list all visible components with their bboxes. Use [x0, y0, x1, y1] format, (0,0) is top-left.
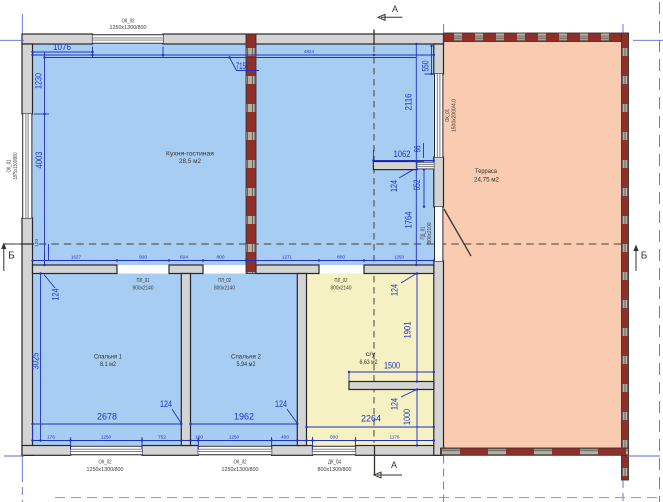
svg-text:1076: 1076 — [53, 42, 71, 52]
svg-text:1962: 1962 — [234, 412, 254, 422]
svg-text:652: 652 — [412, 180, 422, 191]
svg-text:1875х1300/800: 1875х1300/800 — [13, 153, 19, 180]
svg-text:ПЛ_02: ПЛ_02 — [335, 278, 348, 284]
svg-text:ПЛ_02: ПЛ_02 — [218, 278, 231, 284]
svg-text:1500: 1500 — [384, 361, 400, 371]
svg-text:ПД_01: ПД_01 — [421, 227, 427, 240]
svg-text:ДК_04: ДК_04 — [328, 459, 341, 465]
svg-text:124: 124 — [160, 399, 172, 409]
svg-text:1500х2000/4,0: 1500х2000/4,0 — [452, 99, 458, 132]
svg-text:1271: 1271 — [282, 255, 292, 260]
svg-text:900х2140: 900х2140 — [133, 286, 154, 292]
svg-text:66: 66 — [413, 146, 423, 153]
svg-text:550: 550 — [421, 61, 431, 72]
svg-text:Спальня 1: Спальня 1 — [94, 354, 122, 361]
svg-text:2678: 2678 — [97, 412, 117, 422]
svg-text:124: 124 — [51, 289, 61, 301]
svg-text:604: 604 — [180, 255, 189, 260]
svg-text:Б: Б — [641, 250, 648, 262]
svg-text:4003: 4003 — [34, 152, 44, 169]
svg-text:ОК_01: ОК_01 — [445, 109, 451, 122]
svg-text:Б: Б — [8, 250, 15, 262]
svg-text:А: А — [391, 460, 397, 470]
svg-text:120: 120 — [34, 238, 39, 247]
svg-text:4824: 4824 — [304, 49, 314, 54]
svg-text:1250: 1250 — [101, 435, 111, 440]
svg-text:800х1300/800: 800х1300/800 — [318, 467, 352, 473]
svg-text:124: 124 — [390, 398, 400, 410]
svg-text:ПЛ_01: ПЛ_01 — [137, 278, 150, 284]
svg-text:1250х1300/800: 1250х1300/800 — [87, 467, 124, 473]
svg-text:800: 800 — [217, 255, 226, 260]
svg-text:800х2140: 800х2140 — [331, 286, 352, 292]
svg-text:800х2140: 800х2140 — [214, 286, 235, 292]
svg-text:1250х1300/800: 1250х1300/800 — [110, 25, 147, 31]
svg-text:28,5 м2: 28,5 м2 — [179, 158, 201, 165]
svg-text:752: 752 — [158, 435, 167, 440]
svg-text:ОК_02: ОК_02 — [234, 459, 247, 465]
svg-text:ОК_02: ОК_02 — [122, 19, 135, 25]
svg-text:124: 124 — [389, 180, 399, 192]
svg-text:124: 124 — [275, 399, 287, 409]
svg-text:100: 100 — [195, 435, 204, 440]
svg-text:900х2100: 900х2100 — [427, 223, 433, 244]
svg-text:2116: 2116 — [404, 94, 414, 111]
svg-text:800: 800 — [330, 435, 339, 440]
svg-text:8,1 м2: 8,1 м2 — [100, 361, 116, 368]
svg-text:1250х1300/800: 1250х1300/800 — [222, 467, 259, 473]
svg-text:1901: 1901 — [403, 322, 413, 339]
svg-text:1176: 1176 — [390, 435, 401, 440]
svg-text:900: 900 — [139, 255, 148, 260]
svg-text:А: А — [392, 4, 398, 14]
svg-text:1250: 1250 — [229, 435, 239, 440]
svg-text:2264: 2264 — [361, 414, 381, 424]
svg-text:1250: 1250 — [394, 255, 404, 260]
svg-text:176: 176 — [47, 435, 56, 440]
svg-text:24,75 м2: 24,75 м2 — [474, 177, 499, 184]
svg-text:1627: 1627 — [71, 255, 81, 260]
svg-text:Терраса: Терраса — [475, 168, 497, 175]
svg-text:ОК_02: ОК_02 — [99, 459, 112, 465]
svg-text:7157: 7157 — [236, 61, 249, 71]
svg-text:124: 124 — [390, 284, 400, 296]
svg-text:1764: 1764 — [404, 212, 414, 229]
svg-text:с/у: с/у — [366, 351, 377, 358]
svg-text:6,63 м2: 6,63 м2 — [360, 359, 378, 366]
svg-text:1000: 1000 — [402, 409, 412, 425]
svg-text:Спальня 2: Спальня 2 — [231, 354, 261, 361]
svg-text:400: 400 — [281, 435, 290, 440]
svg-text:Кухня-гостиная: Кухня-гостиная — [166, 151, 214, 158]
svg-text:ОК_01: ОК_01 — [7, 160, 13, 173]
svg-text:5,94 м2: 5,94 м2 — [237, 361, 256, 368]
svg-text:800: 800 — [337, 255, 346, 260]
svg-text:3025: 3025 — [31, 353, 41, 370]
svg-text:1062: 1062 — [394, 149, 411, 159]
svg-text:1230: 1230 — [34, 73, 44, 89]
